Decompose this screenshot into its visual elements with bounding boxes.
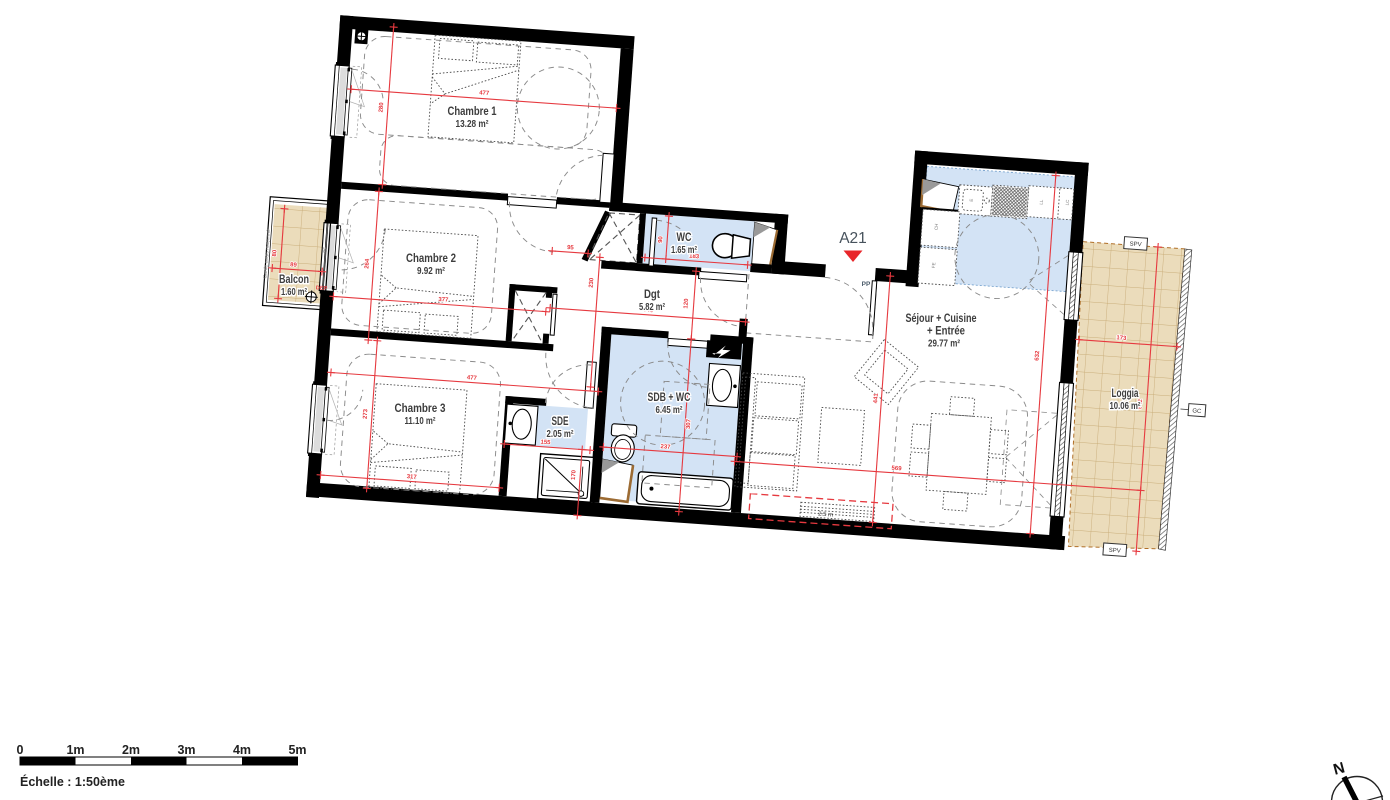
- svg-text:DEP: DEP: [316, 285, 328, 292]
- svg-text:WC: WC: [677, 230, 692, 244]
- svg-text:120: 120: [683, 298, 690, 309]
- svg-text:29.77 m²: 29.77 m²: [928, 339, 961, 350]
- svg-text:230: 230: [589, 277, 596, 288]
- svg-text:13.28 m²: 13.28 m²: [456, 119, 490, 130]
- svg-text:FE: FE: [931, 262, 936, 268]
- svg-text:90: 90: [658, 235, 665, 243]
- svg-text:Échelle : 1:50ème: Échelle : 1:50ème: [20, 774, 125, 789]
- svg-text:6.45 m²: 6.45 m²: [656, 405, 684, 416]
- svg-text:PF: PF: [322, 247, 327, 253]
- svg-text:477: 477: [479, 90, 490, 97]
- svg-text:1.60 m²: 1.60 m²: [281, 287, 308, 298]
- svg-text:173: 173: [1116, 335, 1127, 342]
- svg-text:CH: CH: [934, 224, 939, 231]
- svg-text:Chambre 2: Chambre 2: [406, 251, 456, 265]
- svg-text:280: 280: [379, 102, 386, 113]
- svg-text:Loggia: Loggia: [1112, 386, 1139, 400]
- svg-text:E: E: [969, 198, 974, 201]
- svg-text:+ Entrée: + Entrée: [927, 324, 965, 338]
- svg-text:A21: A21: [839, 230, 867, 247]
- svg-text:264: 264: [364, 258, 371, 269]
- svg-text:632: 632: [1035, 350, 1042, 361]
- svg-text:1.65 m²: 1.65 m²: [671, 245, 698, 256]
- svg-text:SPV: SPV: [1108, 548, 1120, 555]
- svg-text:Chambre 1: Chambre 1: [448, 104, 497, 118]
- svg-text:PP: PP: [862, 281, 871, 288]
- svg-text:Chambre 3: Chambre 3: [395, 401, 446, 415]
- svg-text:4m: 4m: [233, 743, 251, 757]
- svg-text:5.82 m²: 5.82 m²: [639, 302, 666, 313]
- svg-text:2m: 2m: [122, 743, 140, 757]
- svg-text:SDE: SDE: [552, 414, 569, 428]
- svg-text:SDB + WC: SDB + WC: [648, 390, 691, 404]
- svg-text:170: 170: [571, 469, 578, 480]
- svg-text:0: 0: [17, 743, 24, 757]
- svg-text:11.10 m²: 11.10 m²: [405, 416, 437, 427]
- svg-text:95: 95: [567, 245, 575, 252]
- svg-text:155: 155: [540, 440, 551, 447]
- svg-text:89: 89: [290, 262, 298, 269]
- svg-text:3m: 3m: [177, 743, 195, 757]
- svg-text:Balcon: Balcon: [279, 272, 309, 286]
- svg-text:273: 273: [363, 408, 370, 419]
- svg-text:237: 237: [660, 444, 671, 451]
- svg-text:10.06 m²: 10.06 m²: [1110, 401, 1142, 412]
- svg-text:2.5 m: 2.5 m: [818, 512, 833, 519]
- svg-text:569: 569: [891, 466, 902, 473]
- svg-text:441: 441: [873, 393, 880, 404]
- svg-text:LL: LL: [1039, 199, 1044, 205]
- svg-text:477: 477: [467, 375, 478, 382]
- svg-text:9.92 m²: 9.92 m²: [417, 266, 446, 277]
- svg-text:1m: 1m: [66, 743, 84, 757]
- svg-text:377: 377: [438, 297, 449, 304]
- svg-text:2.05 m²: 2.05 m²: [547, 429, 575, 440]
- svg-text:5m: 5m: [288, 743, 306, 757]
- svg-text:SPV: SPV: [1129, 241, 1141, 248]
- svg-text:317: 317: [406, 474, 417, 481]
- svg-text:Dgt: Dgt: [644, 287, 660, 301]
- svg-text:80: 80: [272, 249, 279, 257]
- svg-text:N: N: [1331, 759, 1346, 778]
- svg-text:GC: GC: [1192, 408, 1202, 415]
- svg-text:307: 307: [686, 418, 693, 429]
